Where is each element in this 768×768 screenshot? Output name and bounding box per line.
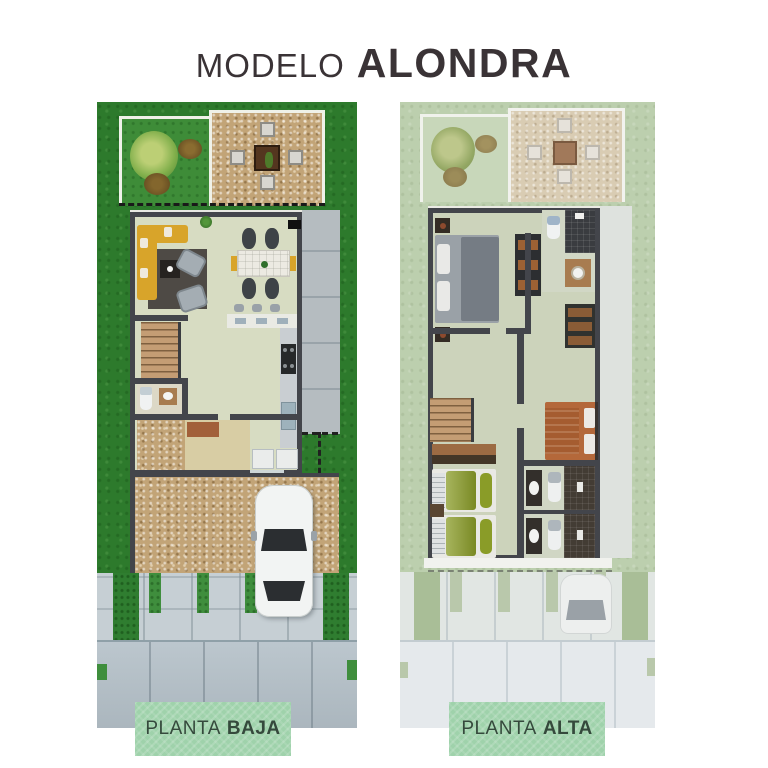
shower: [564, 514, 595, 558]
car-mirror: [311, 531, 317, 541]
hedge: [113, 573, 139, 640]
sofa-pillow: [140, 238, 148, 248]
hedge: [400, 662, 408, 678]
houseplant: [200, 216, 212, 228]
dresser-front: [432, 455, 496, 464]
pillow: [432, 473, 445, 508]
outdoor-table: [553, 141, 577, 165]
outdoor-chair: [288, 150, 303, 165]
interior-wall: [430, 328, 490, 334]
table-plant: [265, 152, 273, 168]
outdoor-chair: [260, 122, 275, 137]
toilet: [548, 472, 561, 502]
floorplan-brochure: MODELOALONDRA: [0, 0, 768, 768]
dining-table: [237, 250, 290, 277]
sink: [529, 481, 539, 495]
dishware: [256, 318, 267, 324]
floor-label-word: PLANTA: [461, 718, 537, 740]
bathroom-vanity: [565, 259, 591, 287]
dining-chair: [265, 278, 279, 299]
dining-chair: [242, 228, 256, 249]
laundry-room: [185, 420, 250, 470]
outdoor-chair: [557, 169, 572, 184]
upper-floor-plan: [400, 102, 655, 728]
interior-wall: [517, 334, 524, 404]
tv: [288, 220, 301, 229]
sidewalk-faded: [400, 572, 655, 640]
shelf: [568, 308, 592, 317]
toilet-tank: [140, 387, 152, 395]
nightstand: [430, 504, 444, 517]
blanket: [446, 517, 476, 556]
shower-handle: [577, 482, 583, 492]
page-title: MODELOALONDRA: [0, 40, 768, 87]
grass-strip: [498, 572, 510, 612]
grass-strip: [149, 573, 161, 613]
mug: [167, 266, 173, 272]
ground-floor-plan: [97, 102, 357, 728]
bar-stool: [270, 304, 280, 312]
car-windshield: [261, 529, 307, 551]
bathroom: [542, 210, 595, 292]
outdoor-chair: [527, 145, 542, 160]
master-bed: [435, 235, 499, 323]
toilet: [547, 216, 560, 239]
blanket-roll: [480, 519, 492, 554]
dining-bench: [290, 256, 296, 271]
pillow: [432, 519, 445, 554]
car: [255, 485, 313, 617]
stove: [281, 344, 296, 374]
car-windshield: [566, 600, 606, 620]
pillow: [584, 408, 595, 428]
shelf: [568, 336, 592, 345]
hedge: [414, 572, 440, 640]
bar-stool: [234, 304, 244, 312]
outdoor-chair: [260, 175, 275, 190]
bathroom: [524, 466, 595, 510]
hedge: [622, 572, 648, 640]
bathroom-vanity: [159, 388, 177, 405]
dryer: [276, 449, 298, 469]
floor-label-name: ALTA: [543, 718, 593, 740]
outdoor-table: [254, 145, 280, 171]
shower: [565, 210, 595, 253]
washer: [252, 449, 274, 469]
laundry-counter: [187, 422, 219, 437]
bush: [178, 139, 202, 159]
car-faded: [560, 574, 612, 634]
pillow: [437, 281, 450, 311]
bar-stool: [252, 304, 262, 312]
dining-chair: [265, 228, 279, 249]
dining-bench: [231, 256, 237, 271]
patio-deck: [209, 110, 325, 206]
bathroom: [524, 514, 595, 558]
interior-wall: [517, 428, 524, 560]
dishware: [277, 318, 288, 324]
bush: [475, 135, 497, 153]
sofa-pillow: [140, 268, 148, 278]
shelf: [568, 322, 592, 331]
outdoor-chair: [585, 145, 600, 160]
sofa: [137, 225, 157, 300]
bathroom-vanity: [526, 518, 542, 554]
blanket: [446, 471, 476, 510]
blanket-roll: [480, 473, 492, 508]
centerpiece: [261, 261, 268, 268]
car-rear-window: [263, 581, 305, 601]
model-name: ALONDRA: [357, 40, 572, 86]
closet: [565, 304, 595, 348]
sink: [571, 266, 585, 280]
model-word: MODELO: [196, 47, 345, 84]
backyard-garden-faded: [420, 114, 512, 202]
bush: [144, 173, 170, 195]
upper-floor-label: PLANTA ALTA: [449, 702, 605, 756]
twin-bed: [432, 515, 496, 558]
side-walkway-faded: [600, 206, 632, 558]
side-walkway: [302, 210, 340, 434]
property-dashed-line: [119, 203, 325, 206]
house-upper-floor: [428, 206, 600, 558]
outdoor-chair: [230, 150, 245, 165]
burner: [283, 364, 287, 368]
floor-label-name: BAJA: [227, 718, 281, 740]
shower: [564, 466, 595, 510]
blanket: [461, 237, 499, 321]
grass-strip: [450, 572, 462, 612]
toilet: [140, 387, 152, 410]
bush: [443, 167, 467, 187]
secondary-bed: [545, 402, 598, 460]
dining-chair: [242, 278, 256, 299]
service-patio: [137, 420, 185, 470]
interior-wall: [525, 233, 531, 329]
nightstand: [435, 218, 450, 233]
car-mirror: [251, 531, 257, 541]
toilet: [548, 520, 561, 550]
interior-wall: [132, 315, 188, 321]
outdoor-chair: [557, 118, 572, 133]
staircase: [430, 398, 474, 442]
dishware: [235, 318, 246, 324]
dresser: [432, 444, 496, 464]
toilet-lid: [547, 216, 560, 225]
shower-head: [575, 213, 584, 219]
grass-strip: [546, 572, 558, 612]
sink: [163, 392, 173, 400]
pillow: [584, 434, 595, 454]
toilet-lid: [548, 520, 561, 531]
backyard-garden: [119, 116, 215, 206]
ground-floor-label: PLANTA BAJA: [135, 702, 291, 756]
roof-ledge: [424, 558, 612, 568]
floor-label-word: PLANTA: [145, 718, 221, 740]
sidewalk: [97, 573, 357, 640]
sofa-pillow: [164, 227, 172, 237]
pillow: [437, 244, 450, 274]
hedge: [97, 664, 107, 680]
house-ground-floor: [130, 210, 302, 473]
blanket: [545, 408, 579, 454]
sink: [529, 529, 539, 543]
burner: [290, 348, 294, 352]
staircase: [141, 322, 181, 380]
burner: [290, 364, 294, 368]
lamp: [440, 223, 446, 229]
shower-handle: [577, 530, 583, 540]
hedge: [347, 660, 357, 680]
bathroom-vanity: [526, 470, 542, 506]
headboard: [595, 402, 598, 460]
patio-deck-faded: [508, 108, 625, 202]
kitchen-bar-counter: [227, 314, 297, 328]
toilet-lid: [548, 472, 561, 483]
burner: [283, 348, 287, 352]
hedge: [323, 573, 349, 640]
hedge: [647, 658, 655, 676]
interior-wall: [182, 378, 188, 418]
grass-strip: [197, 573, 209, 613]
half-bathroom: [137, 384, 182, 414]
